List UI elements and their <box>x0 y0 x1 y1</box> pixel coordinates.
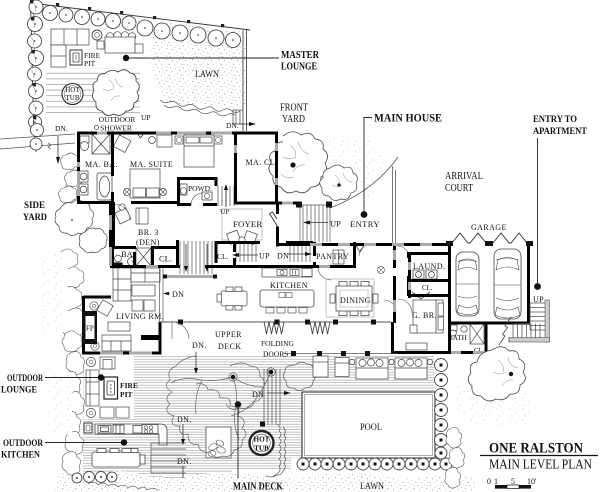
svg-text:UP: UP <box>259 252 270 261</box>
svg-text:OUTDOOR: OUTDOOR <box>3 439 43 449</box>
svg-text:MAIN LEVEL PLAN: MAIN LEVEL PLAN <box>489 457 592 472</box>
svg-text:FP: FP <box>86 325 94 333</box>
svg-text:FOLDING: FOLDING <box>261 339 294 348</box>
svg-text:ENTRY TO: ENTRY TO <box>533 115 577 125</box>
svg-text:DN.: DN. <box>55 124 68 133</box>
svg-text:DN.: DN. <box>177 415 192 424</box>
svg-text:GARAGE: GARAGE <box>471 223 507 232</box>
svg-text:(DEN): (DEN) <box>136 238 160 247</box>
svg-text:POWD.: POWD. <box>188 184 212 193</box>
svg-text:UP: UP <box>533 295 544 304</box>
svg-text:KITCHEN: KITCHEN <box>270 281 308 290</box>
svg-text:YARD: YARD <box>23 213 47 223</box>
svg-text:ONE RALSTON: ONE RALSTON <box>489 441 583 457</box>
svg-text:G. BR.: G. BR. <box>412 311 437 320</box>
svg-text:CL.: CL. <box>422 285 433 292</box>
svg-text:CL.: CL. <box>159 254 172 264</box>
svg-text:HOT: HOT <box>65 86 80 94</box>
svg-text:ENTRY: ENTRY <box>350 219 380 229</box>
svg-text:LAWN: LAWN <box>360 482 384 492</box>
svg-text:SIDE: SIDE <box>24 201 45 211</box>
svg-text:YARD: YARD <box>282 114 305 125</box>
svg-text:UPPER: UPPER <box>215 330 242 339</box>
svg-text:ARRIVAL: ARRIVAL <box>445 171 483 182</box>
svg-text:COURT: COURT <box>445 183 473 194</box>
svg-text:FIRE: FIRE <box>120 381 138 390</box>
svg-text:PIT: PIT <box>120 390 133 399</box>
svg-text:POOL: POOL <box>360 423 382 433</box>
svg-text:HOT: HOT <box>254 436 270 444</box>
svg-text:PANTRY: PANTRY <box>316 252 349 261</box>
svg-text:LAWN: LAWN <box>195 69 219 79</box>
svg-text:OUTDOOR: OUTDOOR <box>7 374 43 384</box>
svg-text:KITCHEN: KITCHEN <box>1 451 40 461</box>
svg-text:DOORS: DOORS <box>263 350 288 359</box>
svg-text:APARTMENT: APARTMENT <box>533 127 588 137</box>
svg-text:FRONT: FRONT <box>280 103 308 114</box>
svg-text:DN.: DN. <box>226 121 239 130</box>
svg-text:0: 0 <box>487 477 491 486</box>
svg-text:DN.: DN. <box>192 341 207 350</box>
svg-text:FOYER: FOYER <box>233 219 262 229</box>
svg-text:UP: UP <box>141 113 151 122</box>
svg-text:LOUNGE: LOUNGE <box>1 386 37 396</box>
svg-text:MASTER: MASTER <box>281 50 320 61</box>
svg-text:DN.: DN. <box>177 457 192 466</box>
svg-text:1: 1 <box>494 477 498 486</box>
svg-text:DN: DN <box>172 290 184 299</box>
svg-text:UP: UP <box>330 219 341 229</box>
svg-text:DN: DN <box>277 252 289 261</box>
svg-text:10': 10' <box>527 477 537 486</box>
svg-text:PIT: PIT <box>84 59 96 68</box>
svg-text:MA. CL.: MA. CL. <box>246 158 278 167</box>
svg-text:DINING: DINING <box>340 296 371 305</box>
svg-text:LOUNGE: LOUNGE <box>281 62 317 73</box>
svg-text:UP: UP <box>220 207 230 216</box>
svg-text:SHOWER: SHOWER <box>100 124 132 133</box>
svg-text:DECK: DECK <box>218 342 241 351</box>
svg-text:BR. 3: BR. 3 <box>138 228 159 237</box>
svg-text:LAUND.: LAUND. <box>413 262 445 271</box>
svg-text:MA. SUITE: MA. SUITE <box>130 160 173 169</box>
svg-text:TUB: TUB <box>66 94 80 102</box>
svg-text:MAIN HOUSE: MAIN HOUSE <box>374 113 442 125</box>
svg-text:TUB: TUB <box>254 445 269 453</box>
svg-text:MAIN DECK: MAIN DECK <box>233 481 283 492</box>
svg-text:LIVING RM.: LIVING RM. <box>116 312 164 321</box>
svg-text:CL.: CL. <box>217 252 229 261</box>
